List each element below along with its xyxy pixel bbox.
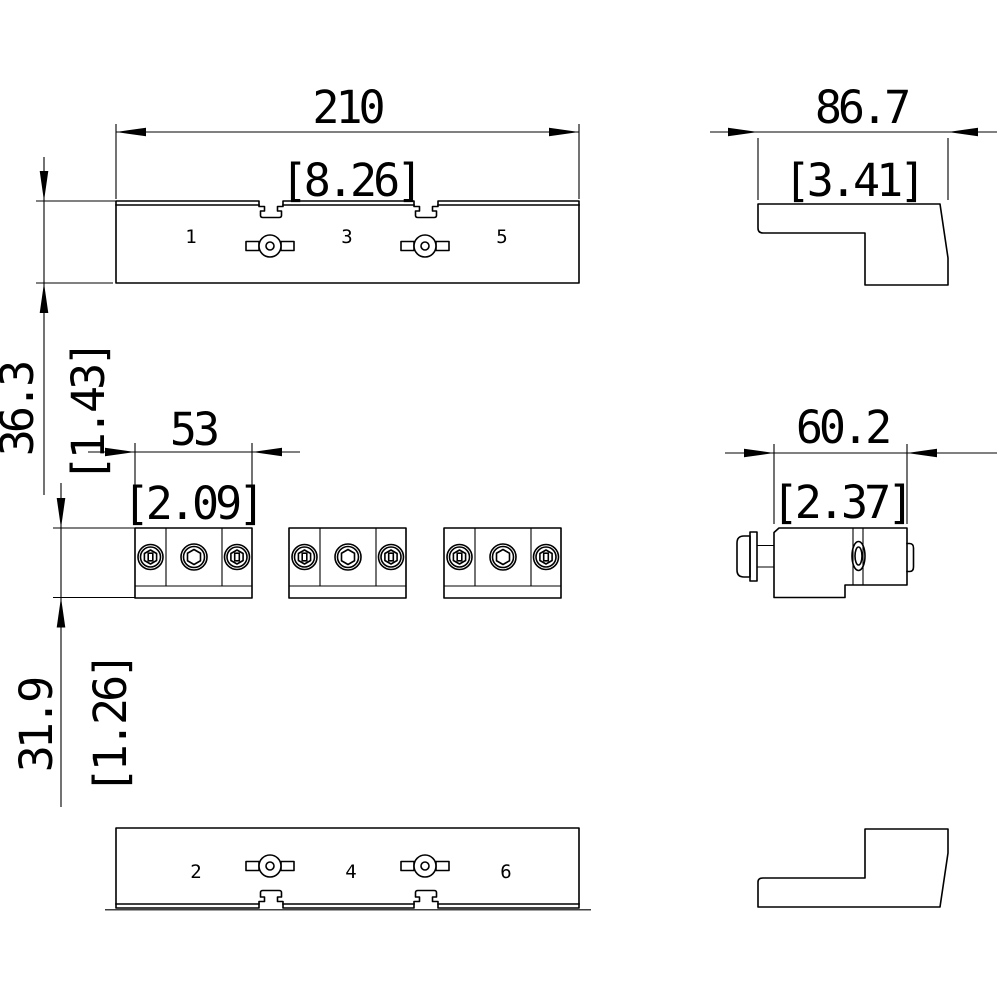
dim-210: 210 [8.26]: [116, 81, 579, 207]
terminal-block-3: [444, 528, 561, 598]
dim-86-7-inch: [3.41]: [784, 154, 923, 207]
dim-53-inch: [2.09]: [123, 477, 262, 530]
arrowhead-icon: [728, 128, 758, 137]
arrowhead-icon: [57, 598, 66, 628]
side-profile-top: [758, 204, 948, 285]
front-view-top: 1 3 5: [116, 201, 579, 283]
dim-210-mm: 210: [312, 81, 383, 134]
arrowhead-icon: [40, 171, 49, 201]
dim-31-9: 31.9 [1.26]: [10, 483, 137, 807]
hex-screw-icon: [225, 545, 250, 570]
terminal-label-2: 2: [190, 861, 201, 883]
side-screw-icon: [737, 532, 774, 581]
arrowhead-icon: [105, 448, 135, 457]
terminal-block-2: [289, 528, 406, 598]
dim-60-2-mm: 60.2: [796, 401, 889, 454]
hex-screw-icon: [181, 544, 207, 570]
dim-86-7-mm: 86.7: [815, 81, 908, 134]
dim-36-3: 36.3 [1.43]: [0, 157, 116, 495]
technical-drawing-sheet: 1 3 5: [0, 0, 1000, 1000]
hex-screw-icon: [379, 545, 404, 570]
arrowhead-icon: [57, 498, 66, 528]
dim-53-mm: 53: [170, 403, 217, 456]
arrowhead-icon: [744, 449, 774, 458]
side-view-bottom: [758, 829, 948, 907]
dim-31-9-mm: 31.9: [10, 678, 63, 772]
hex-screw-icon: [335, 544, 361, 570]
hex-screw-icon: [447, 545, 472, 570]
hex-screw-icon: [138, 545, 163, 570]
front-view-bottom: 2 4 6: [105, 828, 591, 910]
block-side-view: [737, 528, 914, 598]
terminal-label-3: 3: [341, 226, 352, 248]
terminal-block-1: [135, 528, 252, 598]
wing-screw-icon: [246, 855, 294, 877]
dim-31-9-inch: [1.26]: [84, 656, 137, 795]
right-lug: [907, 544, 914, 572]
terminal-label-1: 1: [185, 226, 196, 248]
wing-screw-icon: [401, 855, 449, 877]
hex-screw-icon: [292, 545, 317, 570]
arrowhead-icon: [549, 128, 579, 137]
terminal-label-4: 4: [345, 861, 356, 883]
dim-36-3-inch: [1.43]: [62, 344, 115, 483]
dim-60-2-inch: [2.37]: [772, 476, 911, 529]
screw-hole-oval-inner: [855, 547, 862, 565]
wing-screw-icon: [401, 235, 449, 257]
block-profile: [774, 528, 907, 598]
arrowhead-icon: [40, 283, 49, 313]
arrowhead-icon: [116, 128, 146, 137]
terminal-label-6: 6: [500, 861, 511, 883]
side-profile-bottom: [758, 829, 948, 907]
side-view-top: [758, 204, 948, 285]
arrowhead-icon: [252, 448, 282, 457]
dim-36-3-mm: 36.3: [0, 363, 44, 456]
arrowhead-icon: [948, 128, 978, 137]
dim-53: 53 [2.09]: [88, 403, 300, 530]
arrowhead-icon: [907, 449, 937, 458]
drawing-svg: 1 3 5: [0, 0, 1000, 1000]
wing-screw-icon: [246, 235, 294, 257]
dim-86-7: 86.7 [3.41]: [710, 81, 997, 207]
dim-60-2: 60.2 [2.37]: [725, 401, 997, 529]
hex-screw-icon: [490, 544, 516, 570]
terminal-label-5: 5: [496, 226, 507, 248]
hex-screw-icon: [534, 545, 559, 570]
dim-210-inch: [8.26]: [281, 154, 420, 207]
